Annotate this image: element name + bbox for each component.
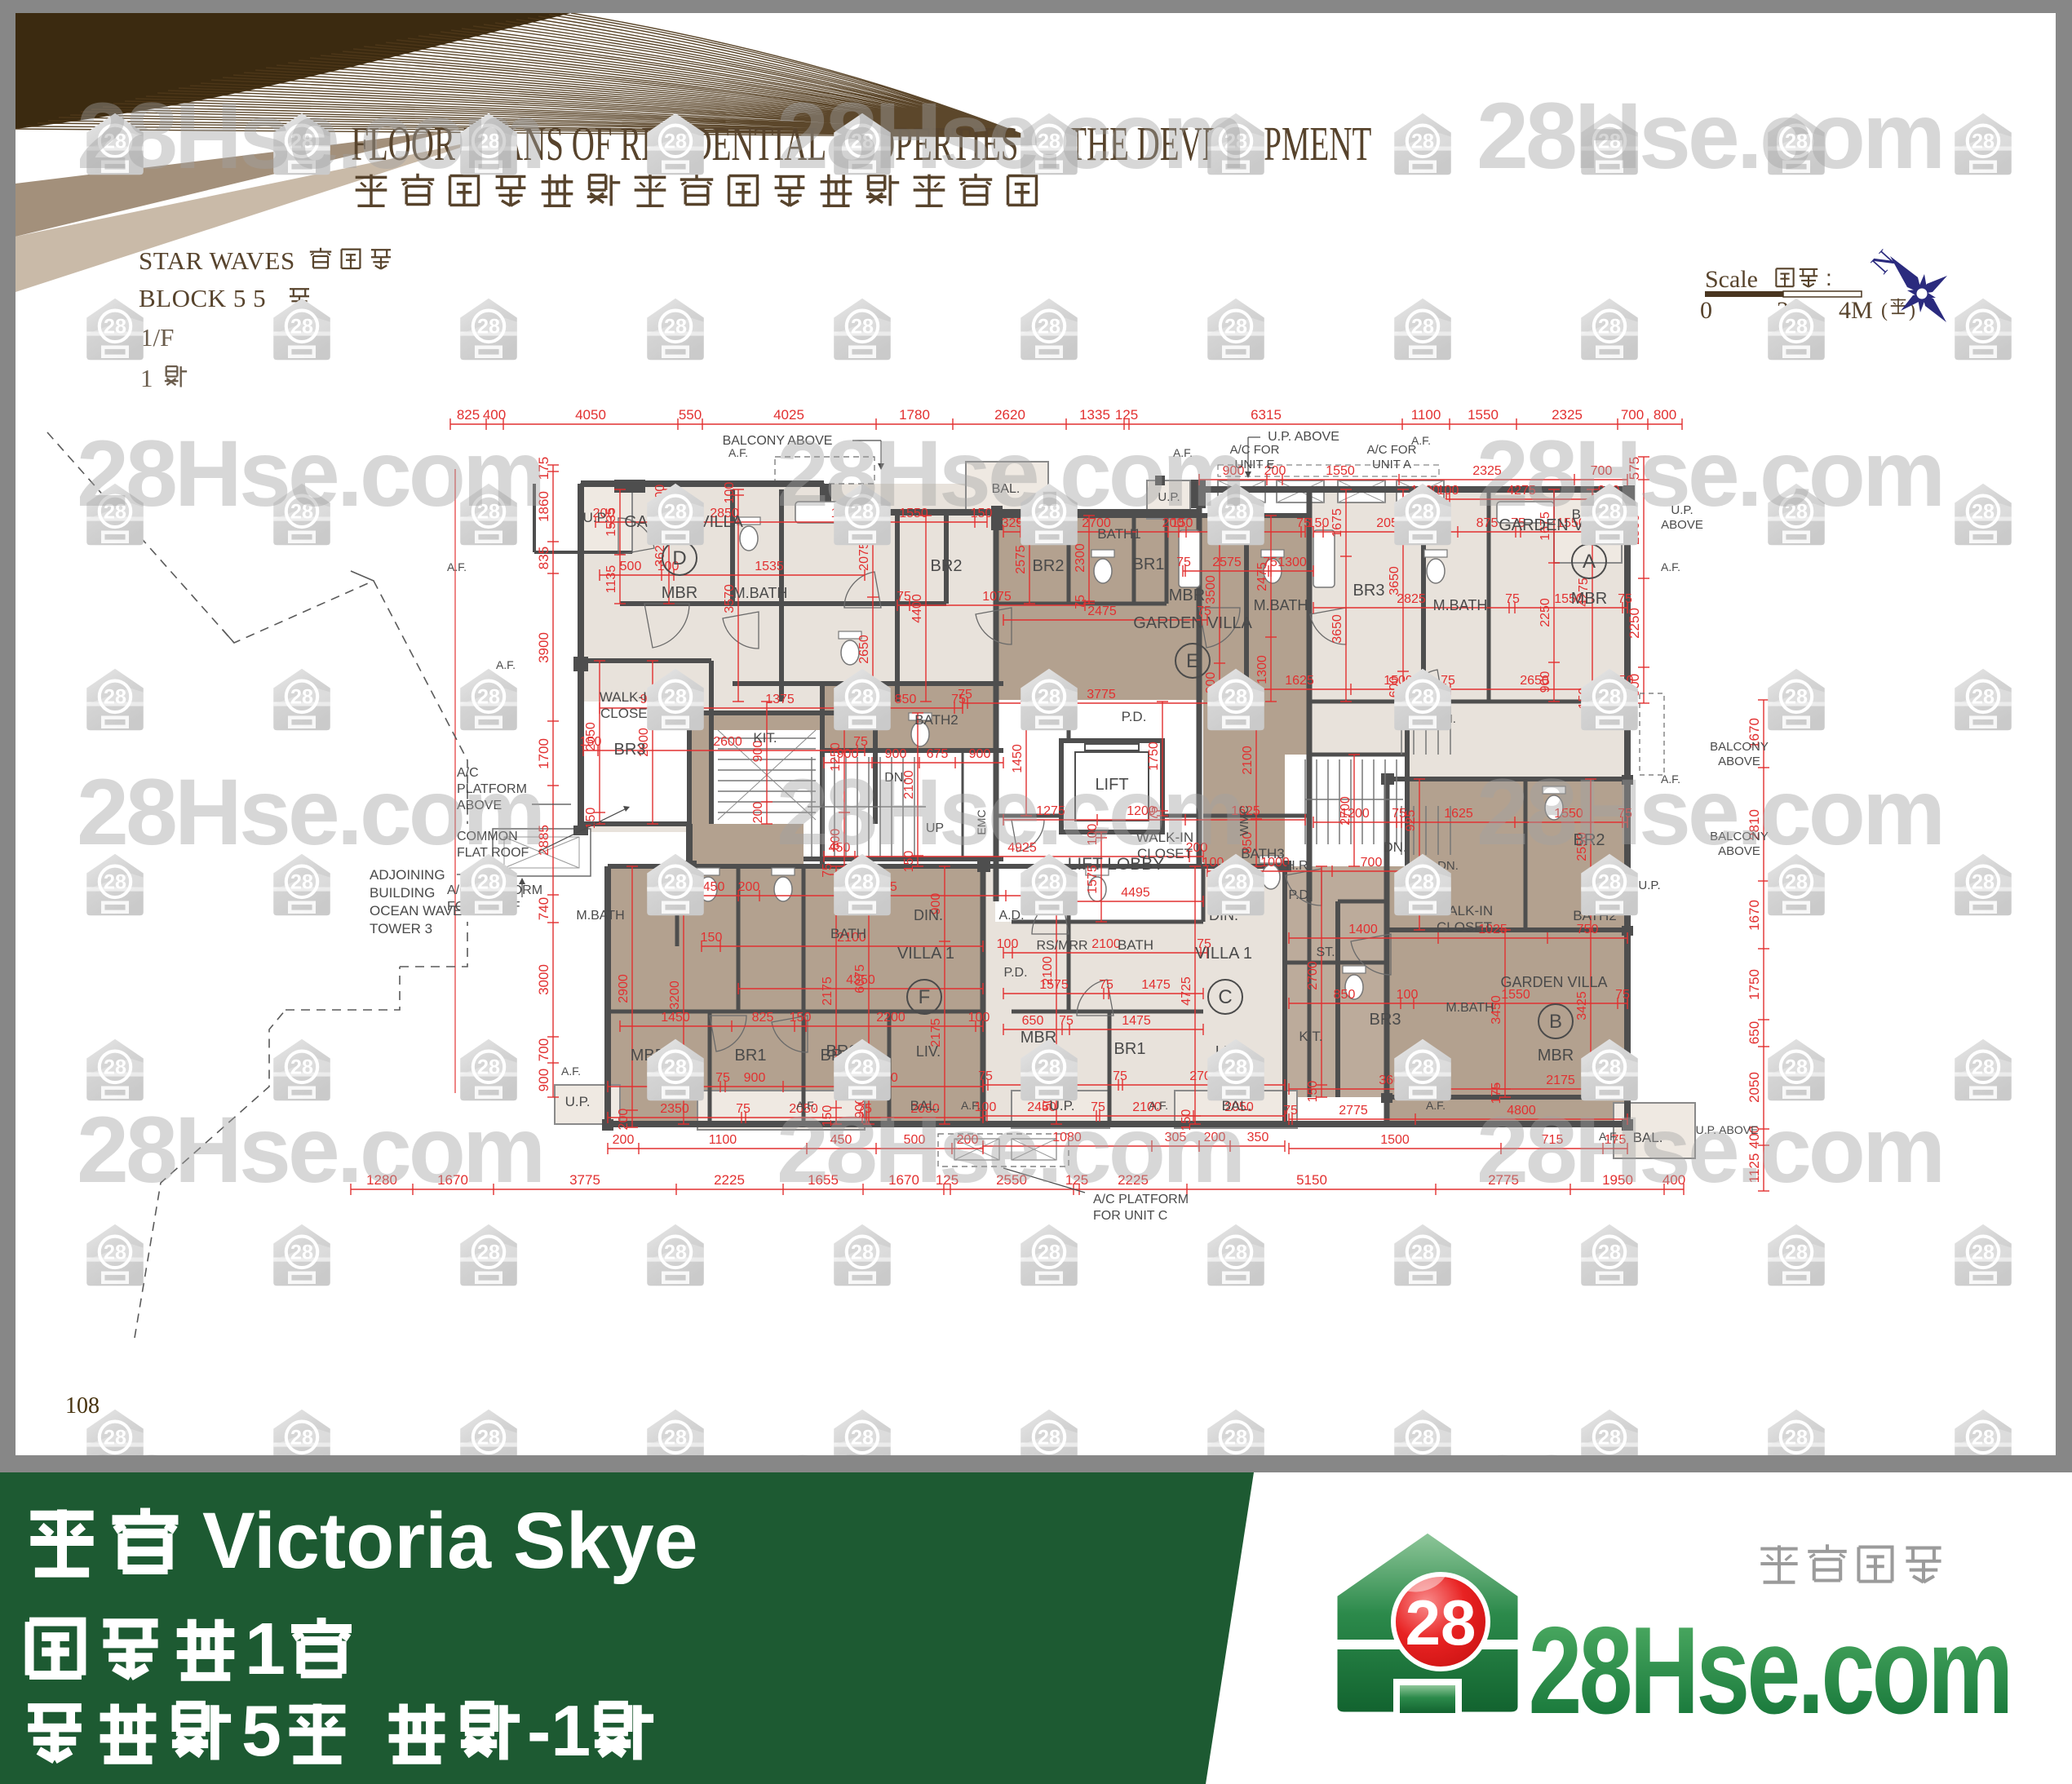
svg-text:100: 100 (1437, 484, 1459, 498)
svg-text:350: 350 (1247, 1131, 1269, 1144)
svg-text:MBR: MBR (1571, 590, 1607, 608)
svg-text:900: 900 (885, 747, 907, 761)
svg-text:-1: -1 (527, 1690, 591, 1771)
svg-text:VILLA 1: VILLA 1 (897, 945, 954, 963)
svg-text:100: 100 (997, 937, 1019, 951)
svg-text:28Hse.com: 28Hse.com (777, 84, 1242, 188)
svg-text:A.D.: A.D. (998, 909, 1024, 923)
svg-text:A.F.: A.F. (496, 658, 516, 671)
svg-text:2475: 2475 (1255, 562, 1269, 591)
svg-text:BATH: BATH (1118, 937, 1153, 953)
svg-text:2225: 2225 (714, 1172, 745, 1188)
svg-text:BR3: BR3 (614, 741, 646, 759)
svg-text:M.BATH: M.BATH (733, 585, 788, 601)
svg-text:28Hse.com: 28Hse.com (77, 1098, 542, 1202)
svg-text:100: 100 (1397, 988, 1419, 1002)
svg-text:900: 900 (1539, 671, 1552, 693)
svg-text:BATH3: BATH3 (1241, 846, 1285, 861)
svg-text:850: 850 (1334, 988, 1356, 1002)
svg-text:BATH2: BATH2 (914, 712, 959, 728)
svg-text::: : (1826, 265, 1832, 290)
svg-text:0: 0 (1700, 297, 1712, 324)
svg-text:MBR: MBR (1169, 587, 1205, 604)
svg-text:A: A (1583, 551, 1596, 573)
svg-text:3200: 3200 (668, 981, 682, 1010)
svg-text:3650: 3650 (1388, 566, 1401, 595)
svg-text:A.F.: A.F. (447, 560, 467, 573)
svg-text:925: 925 (1404, 810, 1418, 832)
svg-text:P.D.: P.D. (1288, 888, 1312, 902)
svg-text:900: 900 (969, 747, 991, 761)
svg-text:75: 75 (821, 863, 835, 878)
svg-text:BR1: BR1 (1114, 1040, 1146, 1058)
svg-text:P.D.: P.D. (1122, 709, 1147, 724)
svg-text:2325: 2325 (1552, 407, 1583, 423)
svg-text:1135: 1135 (604, 565, 618, 594)
svg-text:150: 150 (1306, 1081, 1320, 1103)
svg-text:2900: 2900 (617, 974, 631, 1003)
svg-text:28: 28 (1406, 1587, 1477, 1658)
svg-text:28Hse.com: 28Hse.com (777, 422, 1242, 526)
svg-text:CLOSET: CLOSET (1437, 919, 1492, 935)
svg-text:28Hse.com: 28Hse.com (777, 760, 1242, 865)
svg-text:3650: 3650 (1330, 614, 1344, 644)
svg-text:4025: 4025 (773, 407, 804, 423)
svg-text:MBR: MBR (662, 584, 697, 602)
svg-text:6315: 6315 (1251, 407, 1282, 423)
svg-text:4725: 4725 (1180, 976, 1193, 1006)
svg-text:FOR UNIT C: FOR UNIT C (1093, 1209, 1167, 1223)
svg-text:2650: 2650 (857, 635, 871, 664)
svg-text:75: 75 (978, 1069, 993, 1083)
svg-text:5150: 5150 (1296, 1172, 1327, 1188)
svg-text:1100: 1100 (709, 1133, 737, 1147)
svg-text:2250: 2250 (1539, 598, 1552, 627)
svg-text:D: D (672, 547, 686, 569)
svg-text:150: 150 (790, 1011, 812, 1025)
svg-text:108: 108 (65, 1393, 100, 1419)
svg-text:M.BATH: M.BATH (1433, 597, 1488, 613)
svg-text:1300: 1300 (1255, 655, 1269, 684)
svg-text:3775: 3775 (1087, 688, 1116, 702)
svg-text:200: 200 (751, 802, 765, 824)
svg-text:700: 700 (536, 1038, 551, 1061)
svg-text:28Hse.com: 28Hse.com (77, 84, 542, 188)
svg-text:825: 825 (752, 1011, 774, 1025)
svg-text:BR2: BR2 (1033, 557, 1065, 575)
svg-text:B: B (1549, 1011, 1562, 1033)
svg-text:835: 835 (536, 547, 551, 569)
svg-text:2075: 2075 (857, 542, 871, 571)
svg-text:200: 200 (738, 880, 760, 894)
svg-text:500: 500 (620, 560, 642, 573)
svg-text:700: 700 (1361, 856, 1383, 870)
svg-text:2200: 2200 (876, 1011, 905, 1025)
svg-text:75: 75 (1176, 556, 1191, 569)
svg-text:28Hse.com: 28Hse.com (77, 422, 542, 526)
svg-text:1335: 1335 (1079, 407, 1110, 423)
svg-text:675: 675 (927, 747, 949, 761)
svg-text:A/C FOR: A/C FOR (1367, 443, 1417, 457)
svg-text:28Hse.com: 28Hse.com (1477, 760, 1942, 865)
svg-text:4400: 4400 (910, 594, 924, 623)
svg-text:A.F.: A.F. (1411, 434, 1431, 447)
svg-text:MBR: MBR (1538, 1047, 1574, 1065)
svg-text:KIT.: KIT. (753, 730, 777, 746)
svg-text:2775: 2775 (1339, 1104, 1368, 1118)
svg-text:2700: 2700 (1306, 961, 1320, 990)
svg-text:U.P.: U.P. (1638, 879, 1660, 892)
svg-text:75: 75 (1059, 1014, 1074, 1028)
svg-text:DIN.: DIN. (914, 907, 943, 923)
svg-text:1475: 1475 (1141, 978, 1171, 992)
svg-text:RS/MRR: RS/MRR (1036, 939, 1087, 953)
svg-text:650: 650 (1747, 1021, 1762, 1044)
svg-text:4M: 4M (1839, 297, 1873, 324)
svg-text:BR1: BR1 (1133, 556, 1165, 573)
svg-text:2050: 2050 (584, 722, 598, 751)
svg-text:2175: 2175 (1546, 1073, 1575, 1087)
svg-text:825: 825 (457, 407, 480, 423)
svg-text:900: 900 (536, 1069, 551, 1091)
svg-text:75: 75 (736, 1102, 750, 1116)
svg-text:BUILDING: BUILDING (370, 885, 435, 901)
svg-text:75: 75 (1099, 978, 1113, 992)
svg-text:2475: 2475 (1087, 604, 1117, 618)
svg-text:75: 75 (958, 688, 972, 702)
svg-text:150: 150 (701, 931, 723, 945)
svg-text:2575: 2575 (1212, 556, 1242, 569)
svg-text:2700: 2700 (1339, 796, 1353, 826)
svg-text:P.D.: P.D. (1003, 966, 1027, 980)
svg-text:M.BATH: M.BATH (576, 909, 624, 923)
svg-text:OCEAN WAVES: OCEAN WAVES (370, 903, 472, 919)
svg-text:125: 125 (1115, 407, 1138, 423)
svg-text:BALCONY: BALCONY (1710, 740, 1769, 754)
svg-text:28Hse.com: 28Hse.com (1529, 1601, 2011, 1739)
svg-text:BATH1: BATH1 (1097, 526, 1141, 542)
svg-text:800: 800 (1654, 407, 1676, 423)
svg-text:KIT.: KIT. (1299, 1029, 1322, 1044)
svg-text:2575: 2575 (1014, 545, 1028, 574)
svg-text:Scale: Scale (1705, 266, 1758, 293)
svg-text:75: 75 (1113, 1069, 1127, 1083)
svg-text:2350: 2350 (660, 1102, 689, 1116)
svg-text:28Hse.com: 28Hse.com (1477, 84, 1942, 188)
svg-text:75: 75 (1283, 1104, 1298, 1118)
svg-text:M.BATH: M.BATH (1446, 1001, 1494, 1015)
svg-text:3425: 3425 (1575, 991, 1589, 1020)
svg-text:3775: 3775 (569, 1172, 600, 1188)
svg-text:2175: 2175 (821, 976, 835, 1006)
svg-text:1500: 1500 (1380, 1133, 1410, 1147)
svg-text:A.F.: A.F. (728, 446, 748, 459)
svg-text:ADJOINING: ADJOINING (370, 867, 445, 883)
svg-text:2600: 2600 (713, 735, 742, 749)
svg-text:650: 650 (1022, 1014, 1044, 1028)
svg-text:A.F.: A.F. (1426, 1099, 1446, 1112)
svg-text:(: ( (1881, 300, 1888, 321)
svg-text:BLOCK 5 5: BLOCK 5 5 (139, 284, 266, 312)
svg-text:6075: 6075 (853, 964, 867, 994)
svg-text:75: 75 (1074, 595, 1087, 609)
svg-text:BR3: BR3 (1370, 1011, 1401, 1029)
svg-text:750: 750 (1577, 923, 1599, 936)
svg-text:2250: 2250 (1627, 608, 1642, 639)
svg-text:1075: 1075 (982, 590, 1012, 604)
svg-text:700: 700 (1621, 407, 1644, 423)
svg-text:100: 100 (968, 1011, 990, 1025)
svg-text:75: 75 (1505, 592, 1520, 606)
svg-text:GARDEN VILLA: GARDEN VILLA (1133, 614, 1252, 632)
svg-text:900: 900 (744, 1071, 766, 1085)
svg-text:1625: 1625 (1444, 807, 1473, 821)
svg-text:28Hse.com: 28Hse.com (1477, 422, 1942, 526)
svg-text:1300: 1300 (1277, 556, 1307, 569)
svg-text:550: 550 (679, 407, 702, 423)
svg-text:1535: 1535 (755, 560, 784, 573)
svg-text:Victoria Skye: Victoria Skye (202, 1496, 698, 1585)
svg-text:1100: 1100 (1411, 407, 1441, 423)
svg-text:BR3: BR3 (1353, 582, 1385, 600)
svg-text:C: C (1218, 986, 1232, 1008)
svg-text:28Hse.com: 28Hse.com (1477, 1098, 1942, 1202)
svg-text:1400: 1400 (1348, 923, 1378, 936)
svg-text:1450: 1450 (661, 1011, 690, 1025)
svg-text:1625: 1625 (1285, 674, 1314, 688)
svg-text:4050: 4050 (575, 407, 606, 423)
svg-text:450: 450 (703, 880, 725, 894)
svg-text:U.P. ABOVE: U.P. ABOVE (1268, 430, 1339, 444)
svg-text:BATH: BATH (830, 926, 866, 941)
svg-text:H.R.: H.R. (1286, 859, 1312, 873)
svg-text:850: 850 (895, 693, 917, 706)
svg-text:1750: 1750 (1747, 969, 1762, 1000)
svg-text:STAR WAVES: STAR WAVES (139, 246, 295, 275)
svg-text:BR2: BR2 (931, 557, 963, 575)
svg-text:1670: 1670 (1747, 900, 1762, 931)
svg-text:UNIT A: UNIT A (1372, 458, 1411, 471)
svg-text:1: 1 (245, 1609, 286, 1690)
svg-text:150: 150 (1308, 516, 1330, 530)
svg-text:1: 1 (140, 364, 153, 392)
svg-text:DN.: DN. (1383, 839, 1406, 855)
svg-text:75: 75 (1618, 592, 1632, 606)
svg-text:1675: 1675 (1330, 508, 1344, 538)
svg-text:U.P.: U.P. (583, 510, 609, 525)
svg-text:400: 400 (483, 407, 506, 423)
svg-text:E: E (1186, 650, 1199, 672)
svg-text:A.F.: A.F. (561, 1065, 581, 1078)
svg-text:3000: 3000 (536, 964, 551, 995)
svg-text:100: 100 (723, 482, 737, 504)
svg-text:3900: 3900 (536, 632, 551, 663)
svg-text:28Hse.com: 28Hse.com (77, 760, 542, 865)
svg-text:1375: 1375 (765, 693, 795, 706)
svg-text:2620: 2620 (994, 407, 1025, 423)
svg-text:VILLA 1: VILLA 1 (1195, 945, 1252, 963)
svg-text:2300: 2300 (1074, 543, 1087, 573)
svg-text:1780: 1780 (899, 407, 930, 423)
svg-text:75: 75 (715, 1071, 730, 1085)
svg-text:1550: 1550 (1468, 407, 1499, 423)
svg-text:TOWER 3: TOWER 3 (370, 921, 432, 936)
svg-text:1/F: 1/F (140, 323, 174, 352)
svg-text:ST.: ST. (1316, 945, 1335, 959)
svg-text:GARDEN VILLA: GARDEN VILLA (1500, 974, 1607, 990)
svg-text:3500: 3500 (1204, 575, 1218, 604)
svg-text:2100: 2100 (1091, 937, 1121, 951)
svg-text:740: 740 (536, 897, 551, 920)
svg-text:U.P.: U.P. (565, 1094, 591, 1109)
svg-text:5: 5 (241, 1690, 281, 1771)
svg-text:BR1: BR1 (735, 1047, 767, 1065)
svg-text:1550: 1550 (1326, 464, 1355, 478)
svg-text:1475: 1475 (1122, 1014, 1151, 1028)
svg-text:A.F.: A.F. (1661, 560, 1680, 573)
svg-text:LIV.: LIV. (916, 1043, 941, 1060)
svg-text:M.BATH: M.BATH (1254, 597, 1308, 613)
svg-text:2100: 2100 (1041, 956, 1055, 985)
svg-text:F: F (919, 986, 931, 1008)
svg-text:2100: 2100 (1241, 746, 1255, 775)
svg-text:200: 200 (613, 1133, 635, 1147)
svg-text:4495: 4495 (1121, 886, 1150, 900)
svg-text:28Hse.com: 28Hse.com (777, 1098, 1242, 1202)
